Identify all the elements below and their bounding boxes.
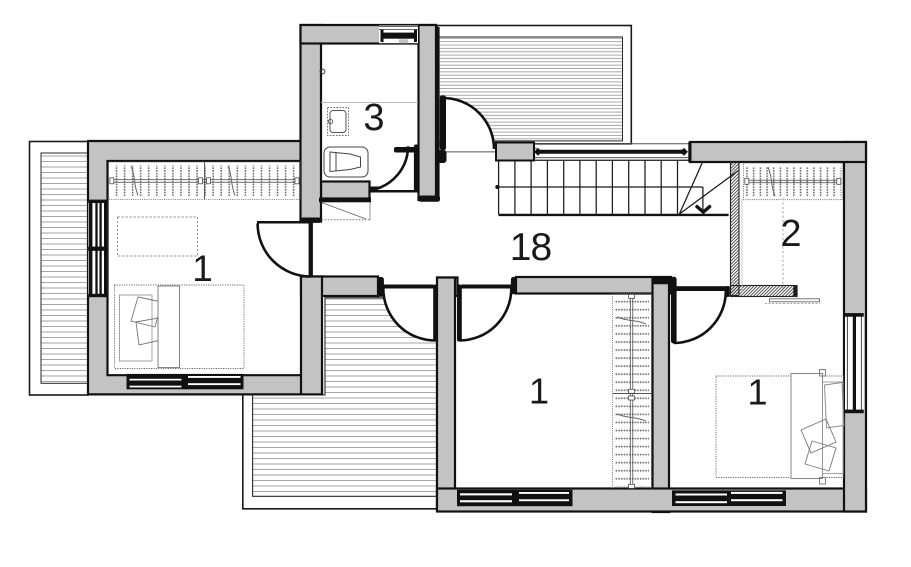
svg-text:1: 1 [192,248,213,289]
svg-text:1: 1 [747,372,767,413]
svg-text:2: 2 [780,213,801,255]
svg-text:3: 3 [363,97,384,139]
svg-text:1: 1 [529,371,549,412]
svg-text:18: 18 [510,226,551,269]
